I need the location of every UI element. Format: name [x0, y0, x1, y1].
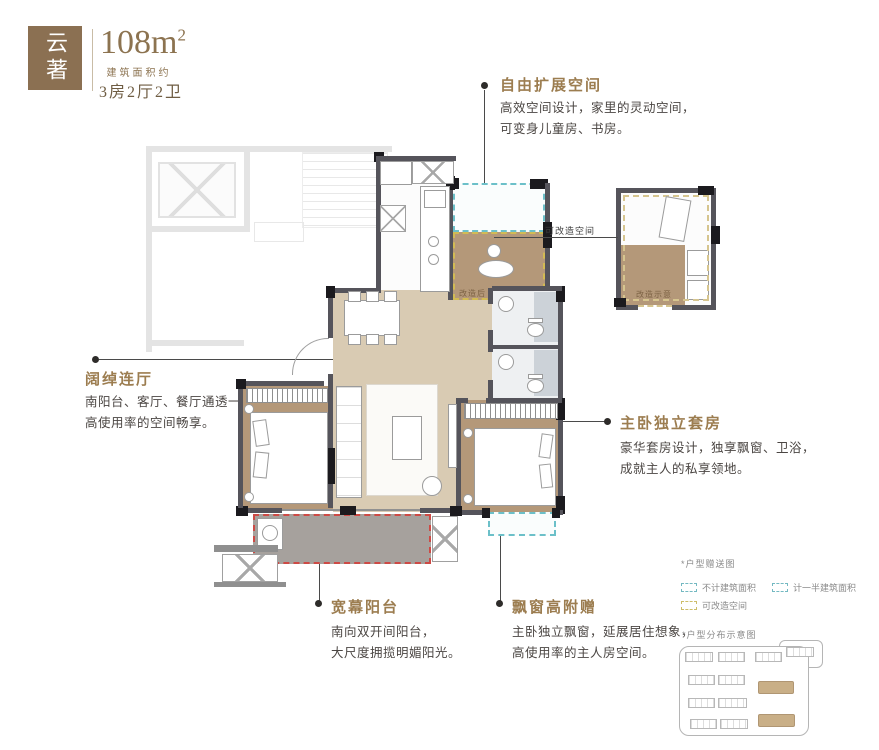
sitemap-building — [688, 698, 715, 708]
legend-label: 可改造空间 — [702, 599, 747, 612]
annotation-bullet — [92, 356, 99, 363]
annotation-leader-line — [560, 421, 606, 422]
pendant-lamp — [487, 244, 501, 258]
legend-swatch-teal — [681, 583, 697, 592]
wall-corner — [711, 226, 720, 244]
sitemap-building — [688, 675, 715, 685]
stove-burner — [428, 236, 439, 247]
wall-corner — [340, 506, 356, 515]
sitemap-building-highlighted — [758, 714, 795, 727]
wall-corner — [326, 286, 335, 298]
nightstand — [244, 404, 254, 414]
annotation-body-balcony: 南向双开间阳台， 大尺度拥揽明媚阳光。 — [331, 622, 461, 665]
wardrobe — [464, 403, 558, 419]
sketch-room-tag: 改造示意 — [636, 289, 672, 300]
wall-corner — [236, 379, 246, 389]
unit-area-value: 108m — [100, 24, 177, 61]
wall-segment — [488, 330, 493, 352]
unit-area: 108m2 — [100, 24, 186, 62]
dining-table — [344, 300, 400, 336]
sitemap-building-highlighted — [758, 681, 794, 694]
sink — [498, 296, 514, 312]
wall-segment — [488, 288, 493, 304]
nightstand — [244, 492, 254, 502]
annotation-bullet — [315, 600, 322, 607]
wall-corner — [482, 508, 490, 518]
convertible-room-tag: 改造后 — [459, 288, 486, 299]
nightstand — [463, 428, 473, 438]
sitemap-building — [685, 652, 713, 662]
sitemap-building — [690, 719, 717, 729]
wall-corner — [450, 506, 462, 516]
entry-door-arc — [292, 338, 329, 375]
chair — [384, 334, 397, 345]
pillow — [253, 451, 270, 478]
sink — [498, 354, 514, 370]
sitemap-building — [720, 719, 748, 729]
wall-segment — [328, 374, 333, 386]
annotation-title-expand: 自由扩展空间 — [500, 74, 602, 95]
annotation-line: 大尺度拥揽明媚阳光。 — [331, 643, 461, 664]
legend-item: 不计建筑面积 — [681, 581, 756, 594]
coffee-table — [392, 416, 422, 460]
nightstand — [463, 494, 473, 504]
kitchen-counter — [380, 161, 412, 185]
ghost-cabinet — [254, 222, 304, 242]
annotation-body-baywindow: 主卧独立飘窗，延展居住想象， 高使用率的主人房空间。 — [512, 622, 694, 665]
kitchen-sink — [424, 190, 446, 208]
wall-segment — [492, 345, 558, 349]
floor-lamp — [422, 476, 442, 496]
ac-platform — [432, 516, 458, 562]
wall-corner — [552, 508, 560, 518]
legend-label: 不计建筑面积 — [702, 581, 756, 594]
legend-swatch-teal — [772, 583, 788, 592]
unit-area-sup: 2 — [177, 26, 186, 45]
annotation-title-suite: 主卧独立套房 — [620, 412, 722, 433]
unit-area-caption: 建筑面积约 — [100, 64, 178, 79]
sitemap-building — [755, 652, 782, 662]
uncounted-balcony-area — [453, 183, 545, 232]
legend-swatch-yellow — [681, 601, 697, 610]
chair — [384, 291, 397, 302]
brand-logo: 云著 — [28, 26, 82, 90]
chair — [348, 291, 361, 302]
tv-console — [448, 404, 457, 468]
wall-segment — [328, 381, 333, 508]
pillow — [539, 463, 553, 488]
sofa — [336, 386, 362, 498]
header-divider — [92, 29, 93, 91]
unit-spec: 3房2厅2卫 — [99, 78, 183, 102]
sitemap-building — [718, 698, 747, 708]
bay-window — [488, 512, 556, 536]
brand-logo-text: 云著 — [39, 31, 71, 85]
ghost-wall — [146, 226, 250, 232]
sitemap-building — [718, 675, 745, 685]
annotation-line: 南向双开间阳台， — [331, 622, 461, 643]
wall-segment — [492, 286, 562, 291]
annotation-line: 主卧独立飘窗，延展居住想象， — [512, 622, 694, 643]
legend-label: 计一半建筑面积 — [793, 581, 856, 594]
washing-machine-door — [262, 525, 278, 541]
legend-item: 可改造空间 — [681, 599, 747, 612]
annotation-leader-line — [494, 237, 618, 238]
wall-corner — [614, 298, 626, 307]
sketch-window-opening — [638, 305, 672, 312]
annotation-title-balcony: 宽幕阳台 — [331, 596, 399, 617]
toilet — [527, 379, 544, 393]
sitemap-building — [786, 647, 814, 657]
fridge — [380, 205, 406, 232]
legend-title: *户型赠送图 — [681, 557, 736, 570]
flue-box — [412, 161, 454, 184]
toilet — [527, 323, 544, 337]
exterior-ledge — [214, 582, 286, 587]
annotation-body-suite: 豪华套房设计，独享飘窗、卫浴， 成就主人的私享领地。 — [620, 438, 815, 481]
annotation-bullet — [481, 82, 488, 89]
chair — [366, 334, 379, 345]
annotation-line: 可变身儿童房、书房。 — [500, 119, 695, 140]
annotation-line: 豪华套房设计，独享飘窗、卫浴， — [620, 438, 815, 459]
annotation-body-expand: 高效空间设计，家里的灵动空间， 可变身儿童房、书房。 — [500, 98, 695, 141]
annotation-title-hall: 阔绰连厅 — [85, 368, 153, 389]
annotation-line: 成就主人的私享领地。 — [620, 459, 815, 480]
wardrobe — [246, 388, 328, 403]
elevator-shaft — [158, 162, 236, 218]
table — [478, 260, 514, 278]
ac-platform — [222, 554, 278, 582]
convertible-space-label: 可改造空间 — [545, 224, 595, 237]
annotation-line: 高效空间设计，家里的灵动空间， — [500, 98, 695, 119]
annotation-bullet — [604, 418, 611, 425]
ghost-wall — [152, 340, 244, 346]
sitemap-title: *户型分布示意图 — [682, 628, 757, 641]
wall-segment — [238, 381, 243, 508]
legend-item: 计一半建筑面积 — [772, 581, 856, 594]
chair — [366, 291, 379, 302]
annotation-title-baywindow: 飘窗高附赠 — [512, 596, 597, 617]
wall-segment — [238, 381, 324, 386]
sitemap-building — [718, 652, 745, 662]
chair — [348, 334, 361, 345]
stove-burner — [428, 254, 439, 265]
annotation-bullet — [496, 600, 503, 607]
exterior-ledge — [214, 545, 278, 552]
ghost-wall — [146, 280, 152, 346]
ghost-wall — [244, 152, 250, 230]
floorplan-page: 云著 108m2 建筑面积约 3房2厅2卫 自由扩展空间 高效空间设计，家里的灵… — [0, 0, 879, 750]
wall-corner — [698, 186, 714, 195]
annotation-line: 高使用率的主人房空间。 — [512, 643, 694, 664]
